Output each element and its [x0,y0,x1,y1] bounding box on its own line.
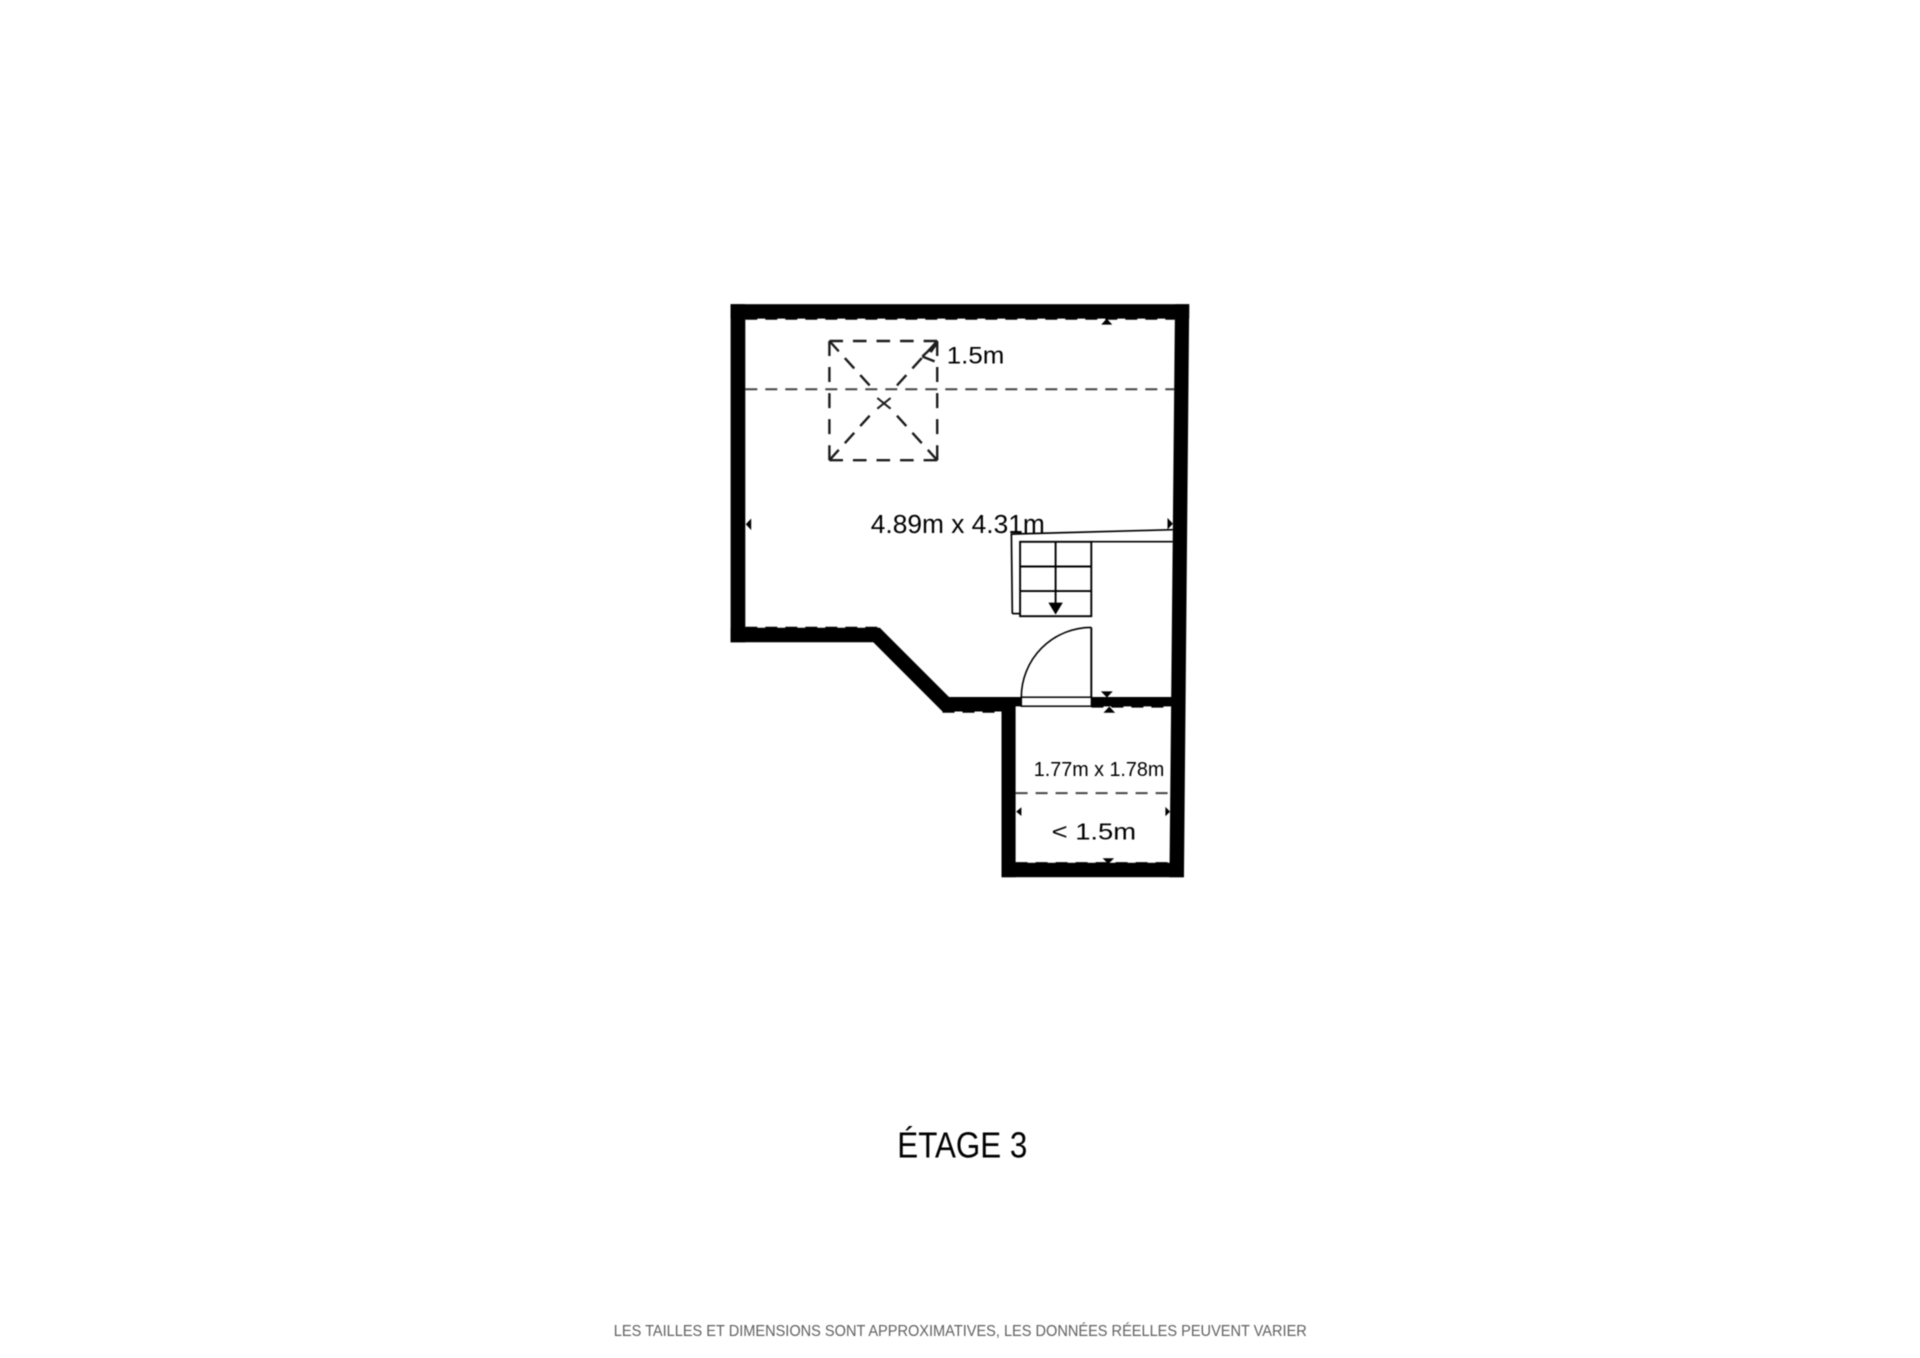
svg-text:1.77m x 1.78m: 1.77m x 1.78m [1034,759,1165,781]
svg-text:ÉTAGE 3: ÉTAGE 3 [897,1124,1027,1165]
svg-text:1.5m: 1.5m [947,342,1005,369]
svg-text:< 1.5m: < 1.5m [1052,819,1137,845]
svg-text:4.89m x 4.31m: 4.89m x 4.31m [871,511,1045,539]
svg-text:LES TAILLES ET DIMENSIONS SONT: LES TAILLES ET DIMENSIONS SONT APPROXIMA… [614,1321,1307,1340]
